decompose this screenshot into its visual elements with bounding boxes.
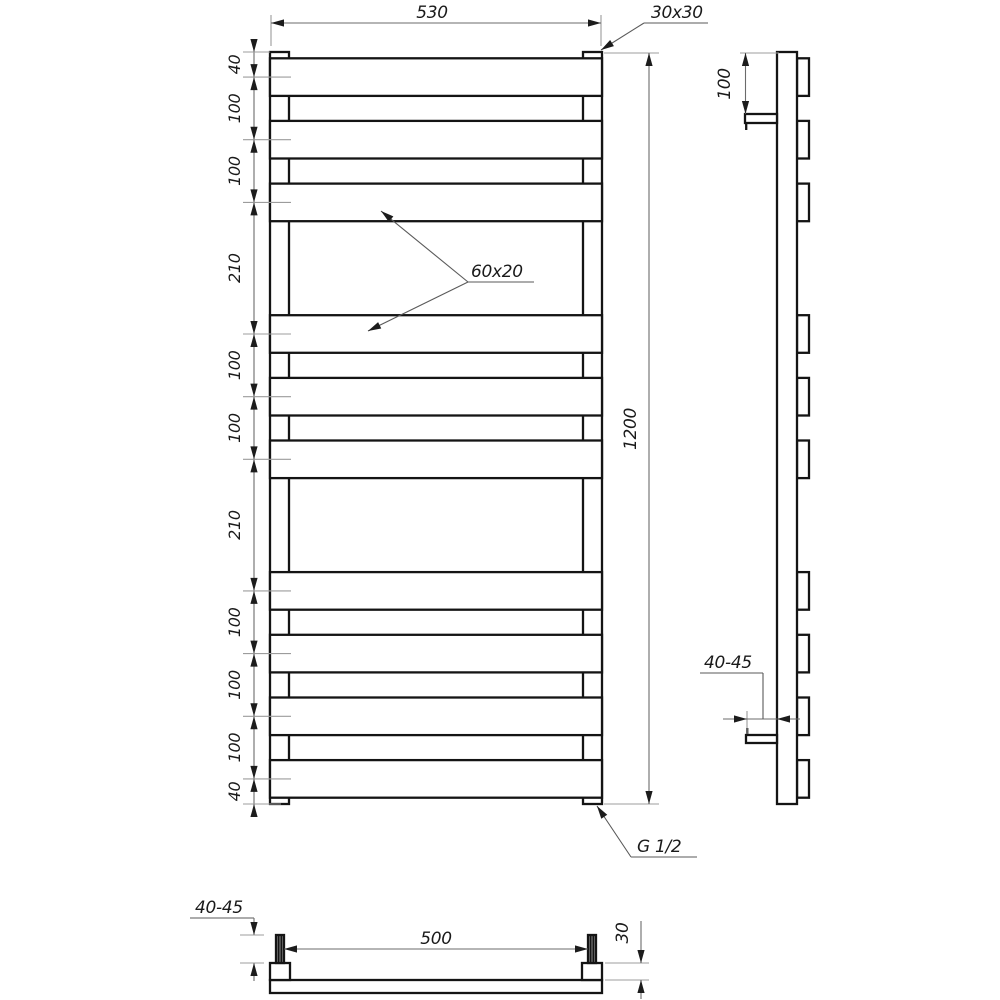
- bottom-right-mount-stub: [588, 935, 596, 963]
- arrowhead-icon: [637, 950, 644, 963]
- dim-label-bar-profile: 60x20: [471, 262, 523, 282]
- arrowhead-icon: [250, 716, 257, 729]
- front-bar: [270, 58, 602, 96]
- dim-label-height: 1200: [621, 408, 641, 450]
- bottom-right-collector: [582, 963, 602, 980]
- arrowhead-icon: [250, 766, 257, 779]
- chain-label: 100: [225, 93, 244, 123]
- chain-label: 100: [225, 413, 244, 443]
- front-bar: [270, 572, 602, 610]
- arrowhead-icon: [645, 53, 652, 66]
- dim-label-mount-span: 500: [420, 929, 452, 949]
- arrowhead-icon: [250, 127, 257, 140]
- arrowhead-icon: [250, 321, 257, 334]
- side-collector-profile: [777, 52, 797, 804]
- front-bar: [270, 315, 602, 353]
- arrowhead-icon: [734, 715, 747, 722]
- bottom-left-collector: [270, 963, 290, 980]
- arrowhead-icon: [250, 641, 257, 654]
- front-bar: [270, 121, 602, 159]
- towel-rail-drawing: 530 30x30 1200 60x20 G 1/2 4010010021010…: [0, 0, 1000, 1000]
- side-bar-end-tab: [797, 441, 809, 479]
- arrowhead-icon: [250, 446, 257, 459]
- arrowhead-icon: [284, 945, 297, 952]
- front-view: [270, 52, 602, 804]
- dim-label-collector-profile: 30x30: [651, 3, 703, 23]
- side-bar-end-tab: [797, 572, 809, 610]
- arrowhead-icon: [250, 39, 257, 52]
- chain-label: 100: [225, 733, 244, 763]
- side-bar-end-tab: [797, 315, 809, 353]
- dim-label-width: 530: [416, 3, 448, 23]
- chain-label: 100: [225, 350, 244, 380]
- technical-drawing-canvas: 530 30x30 1200 60x20 G 1/2 4010010021010…: [0, 0, 1000, 1000]
- arrowhead-icon: [250, 64, 257, 77]
- arrowhead-icon: [250, 459, 257, 472]
- chain-label: 40: [225, 782, 244, 802]
- side-bar-end-tab: [797, 698, 809, 736]
- arrowhead-icon: [588, 19, 601, 26]
- chain-label: 210: [225, 253, 244, 283]
- side-bar-end-tab: [797, 121, 809, 159]
- bottom-flat-bar: [270, 980, 602, 993]
- arrowhead-icon: [575, 945, 588, 952]
- dim-label-bracket-offset: 100: [715, 68, 735, 100]
- dim-label-depth: 30: [613, 922, 633, 943]
- arrowhead-icon: [742, 101, 749, 114]
- bottom-left-mount-stub: [276, 935, 284, 963]
- chain-label: 210: [225, 510, 244, 540]
- chain-label: 100: [225, 607, 244, 637]
- dim-label-side-wall-distance: 40-45: [704, 653, 752, 673]
- dimension-arrowheads: [250, 19, 790, 993]
- dim-label-connection: G 1/2: [637, 837, 681, 857]
- dim-label-bottom-wall-distance: 40-45: [195, 898, 243, 918]
- arrowhead-icon: [250, 804, 257, 817]
- arrowhead-icon: [250, 77, 257, 90]
- side-bar-end-tab: [797, 184, 809, 222]
- arrowhead-icon: [271, 19, 284, 26]
- front-bar: [270, 184, 602, 222]
- front-bar: [270, 698, 602, 736]
- front-bar: [270, 760, 602, 798]
- front-bar: [270, 378, 602, 416]
- arrowhead-icon: [742, 53, 749, 66]
- arrowhead-icon: [594, 804, 607, 819]
- chain-label: 100: [225, 156, 244, 186]
- arrowhead-icon: [250, 922, 257, 935]
- side-top-wall-bracket: [745, 114, 777, 123]
- arrowhead-icon: [637, 980, 644, 993]
- front-bars: [270, 58, 602, 797]
- arrowhead-icon: [250, 779, 257, 792]
- chain-label: 40: [225, 55, 244, 75]
- side-bar-end-tabs: [797, 58, 809, 797]
- side-bar-end-tab: [797, 378, 809, 416]
- side-bottom-wall-bracket: [746, 735, 777, 743]
- arrowhead-icon: [250, 591, 257, 604]
- arrowhead-icon: [250, 202, 257, 215]
- chain-label: 100: [225, 670, 244, 700]
- arrowhead-icon: [250, 189, 257, 202]
- arrowhead-icon: [250, 397, 257, 410]
- front-bar: [270, 635, 602, 673]
- arrowhead-icon: [250, 578, 257, 591]
- front-left-collector: [270, 52, 289, 804]
- arrowhead-icon: [250, 703, 257, 716]
- arrowhead-icon: [250, 963, 257, 976]
- front-right-collector: [583, 52, 602, 804]
- side-bar-end-tab: [797, 635, 809, 673]
- front-bar: [270, 441, 602, 479]
- arrowhead-icon: [645, 791, 652, 804]
- side-view: [745, 52, 809, 804]
- arrowhead-icon: [250, 654, 257, 667]
- side-bar-end-tab: [797, 760, 809, 798]
- arrowhead-icon: [250, 384, 257, 397]
- arrowhead-icon: [250, 140, 257, 153]
- arrowhead-icon: [250, 334, 257, 347]
- side-bar-end-tab: [797, 58, 809, 96]
